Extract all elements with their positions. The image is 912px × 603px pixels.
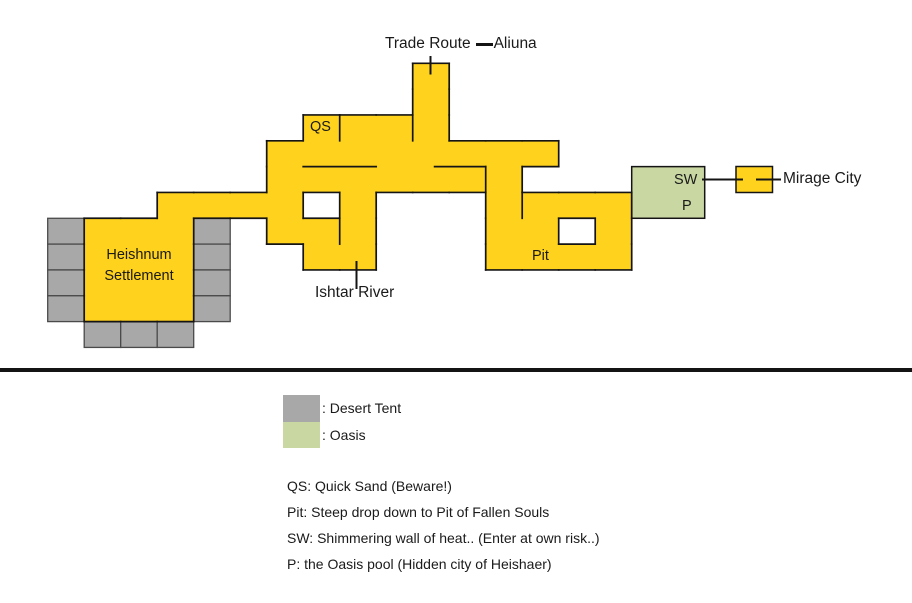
quick-sand-label: QS — [310, 119, 331, 135]
oasis-swatch — [283, 422, 320, 449]
aliuna-text: Aliuna — [494, 35, 537, 53]
legend-note-qs: QS: Quick Sand (Beware!) — [287, 473, 600, 499]
shimmering-wall-label: SW — [674, 172, 697, 188]
divider-line — [0, 368, 912, 372]
oasis-pool-label: P — [682, 198, 692, 214]
desert-map-canvas: Trade Route Aliuna QS Pit SW P Heishnum … — [0, 0, 912, 603]
oasis-legend-label: : Oasis — [322, 427, 366, 443]
legend-note-pit: Pit: Steep drop down to Pit of Fallen So… — [287, 499, 600, 525]
legend-notes: QS: Quick Sand (Beware!) Pit: Steep drop… — [287, 473, 600, 577]
desert-tent-legend-label: : Desert Tent — [322, 400, 401, 416]
pit-label: Pit — [532, 248, 549, 264]
trade-aliuna-connector-line — [476, 43, 493, 45]
trade-route-text: Trade Route — [385, 35, 471, 53]
trade-route-label: Trade Route Aliuna — [385, 35, 537, 53]
heishnum-settlement-label: Heishnum Settlement — [84, 245, 194, 287]
mirage-city-label: Mirage City — [783, 170, 861, 188]
ishtar-river-label: Ishtar River — [315, 284, 394, 302]
desert-tent-swatch — [283, 395, 320, 422]
legend-note-sw: SW: Shimmering wall of heat.. (Enter at … — [287, 525, 600, 551]
legend-note-p: P: the Oasis pool (Hidden city of Heisha… — [287, 551, 600, 577]
